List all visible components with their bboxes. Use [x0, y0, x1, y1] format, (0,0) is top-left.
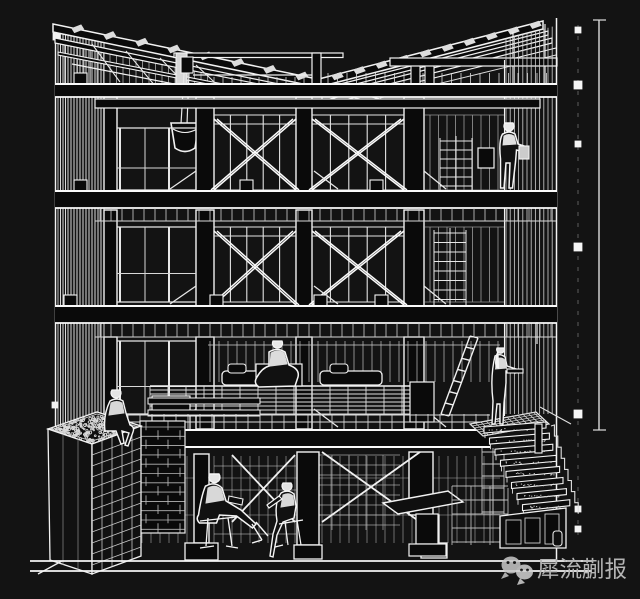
svg-text:犀流蒯报: 犀流蒯报: [537, 557, 627, 582]
